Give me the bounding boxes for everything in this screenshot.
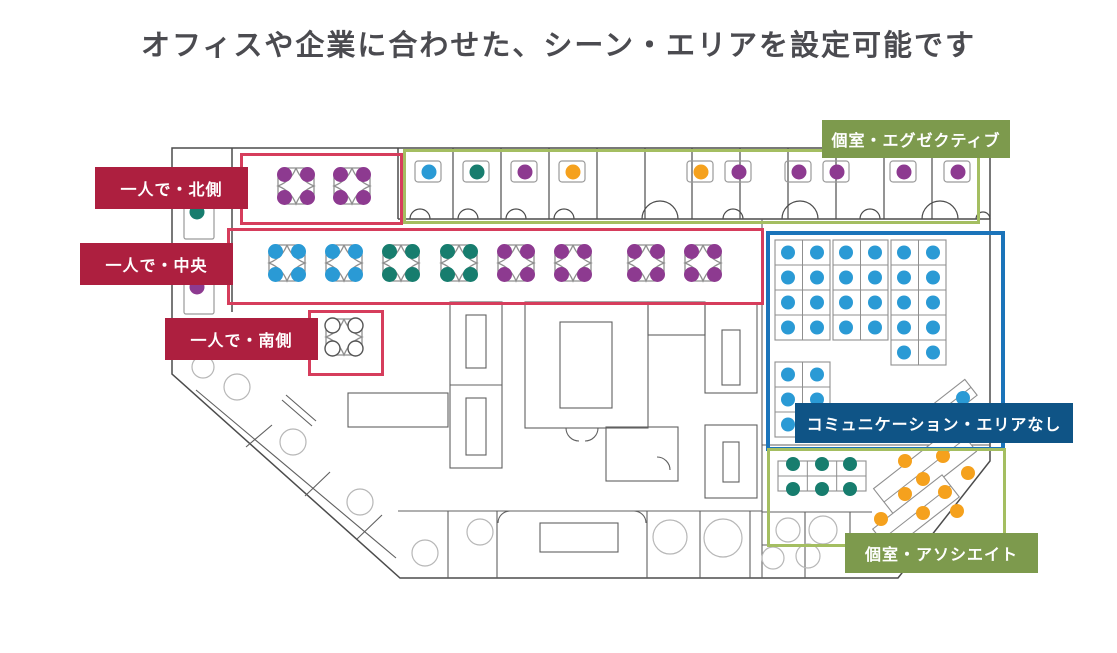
seat-dot-teal — [843, 457, 857, 471]
seat-dot-orange — [566, 165, 581, 180]
seat-dot-blue — [781, 296, 795, 310]
seat-dot-purple — [518, 165, 533, 180]
seat-dot-purple — [277, 167, 292, 182]
seat-dot-purple — [520, 267, 535, 282]
seat-dot-teal — [470, 165, 485, 180]
seat-dot-orange — [938, 485, 952, 499]
seat-dot-teal — [440, 244, 455, 259]
seat-dot-orange — [874, 512, 888, 526]
seat-dot-empty — [348, 318, 363, 333]
seat-dot-blue — [897, 271, 911, 285]
area-label-south: 一人で・南側 — [165, 318, 318, 360]
seat-dot-blue — [348, 267, 363, 282]
seat-dot-purple — [554, 267, 569, 282]
seat-dot-teal — [463, 267, 478, 282]
seat-dot-purple — [497, 267, 512, 282]
seat-dot-blue — [422, 165, 437, 180]
seat-dot-purple — [333, 167, 348, 182]
seat-dot-purple — [707, 244, 722, 259]
seat-dot-blue — [325, 267, 340, 282]
seat-dot-teal — [405, 244, 420, 259]
outer-walls — [172, 148, 990, 578]
seat-dot-purple — [300, 190, 315, 205]
seat-dot-blue — [810, 368, 824, 382]
seat-dot-purple — [497, 244, 512, 259]
seat-dot-blue — [897, 296, 911, 310]
seat-dot-blue — [868, 271, 882, 285]
area-label-center: 一人で・中央 — [80, 243, 233, 285]
seat-dot-blue — [781, 246, 795, 260]
seat-dot-blue — [810, 321, 824, 335]
area-label-communication: コミュニケーション・エリアなし — [795, 403, 1073, 443]
seat-dot-purple — [627, 267, 642, 282]
seat-dot-purple — [520, 244, 535, 259]
seat-dot-purple — [300, 167, 315, 182]
seat-dot-purple — [650, 244, 665, 259]
seat-dot-blue — [291, 267, 306, 282]
seat-dot-teal — [786, 482, 800, 496]
seat-dot-blue — [926, 296, 940, 310]
seat-dot-blue — [868, 321, 882, 335]
seat-dot-blue — [325, 244, 340, 259]
area-label-associate: 個室・アソシエイト — [845, 533, 1038, 573]
seat-dot-purple — [830, 165, 845, 180]
seat-dot-purple — [684, 244, 699, 259]
seat-dot-blue — [839, 246, 853, 260]
seat-dot-blue — [897, 321, 911, 335]
seat-dot-purple — [707, 267, 722, 282]
seat-dot-purple — [627, 244, 642, 259]
seat-dot-blue — [926, 321, 940, 335]
seat-dot-blue — [926, 246, 940, 260]
seat-dot-purple — [577, 267, 592, 282]
seat-dot-blue — [291, 244, 306, 259]
seat-dot-blue — [781, 418, 795, 432]
seat-dot-teal — [815, 457, 829, 471]
seat-dot-teal — [382, 244, 397, 259]
seat-dot-blue — [781, 271, 795, 285]
seat-dot-purple — [356, 190, 371, 205]
seat-dot-blue — [868, 246, 882, 260]
seat-dot-blue — [926, 346, 940, 360]
seat-dot-orange — [916, 472, 930, 486]
seat-dot-orange — [936, 449, 950, 463]
seat-dot-purple — [684, 267, 699, 282]
area-label-north: 一人で・北側 — [95, 167, 248, 209]
seat-dot-empty — [325, 341, 340, 356]
seat-dot-purple — [277, 190, 292, 205]
seat-dot-teal — [382, 267, 397, 282]
seat-dot-purple — [732, 165, 747, 180]
seat-dot-blue — [839, 321, 853, 335]
seat-dot-blue — [868, 296, 882, 310]
seat-dot-blue — [839, 296, 853, 310]
seat-dot-orange — [950, 504, 964, 518]
seat-dot-empty — [348, 341, 363, 356]
seat-dot-blue — [781, 321, 795, 335]
area-label-executive: 個室・エグゼクティブ — [822, 120, 1010, 158]
seat-dot-blue — [926, 271, 940, 285]
seat-dot-orange — [694, 165, 709, 180]
seat-dot-blue — [268, 267, 283, 282]
seat-dot-purple — [951, 165, 966, 180]
seat-dot-purple — [333, 190, 348, 205]
seat-dot-blue — [897, 246, 911, 260]
seat-dot-teal — [815, 482, 829, 496]
seat-dot-purple — [356, 167, 371, 182]
seat-dot-blue — [810, 246, 824, 260]
seat-dot-teal — [786, 457, 800, 471]
seat-dot-purple — [897, 165, 912, 180]
seat-dot-empty — [325, 318, 340, 333]
seat-dot-blue — [897, 346, 911, 360]
seat-dot-teal — [405, 267, 420, 282]
seat-dot-blue — [839, 271, 853, 285]
seat-dot-blue — [810, 271, 824, 285]
seat-dot-blue — [268, 244, 283, 259]
seat-dot-purple — [554, 244, 569, 259]
seat-dot-teal — [463, 244, 478, 259]
seat-dot-blue — [781, 368, 795, 382]
seat-dot-blue — [781, 393, 795, 407]
seat-dot-orange — [916, 506, 930, 520]
seat-dot-orange — [961, 466, 975, 480]
seat-dot-purple — [577, 244, 592, 259]
seat-dot-orange — [898, 487, 912, 501]
seat-dot-teal — [440, 267, 455, 282]
seat-dot-purple — [792, 165, 807, 180]
seat-dot-orange — [898, 454, 912, 468]
seat-dot-blue — [810, 296, 824, 310]
office-floorplan-infographic: オフィスや企業に合わせた、シーン・エリアを設定可能です — [0, 0, 1117, 653]
seat-dot-blue — [348, 244, 363, 259]
seat-dot-purple — [650, 267, 665, 282]
seat-dot-teal — [843, 482, 857, 496]
